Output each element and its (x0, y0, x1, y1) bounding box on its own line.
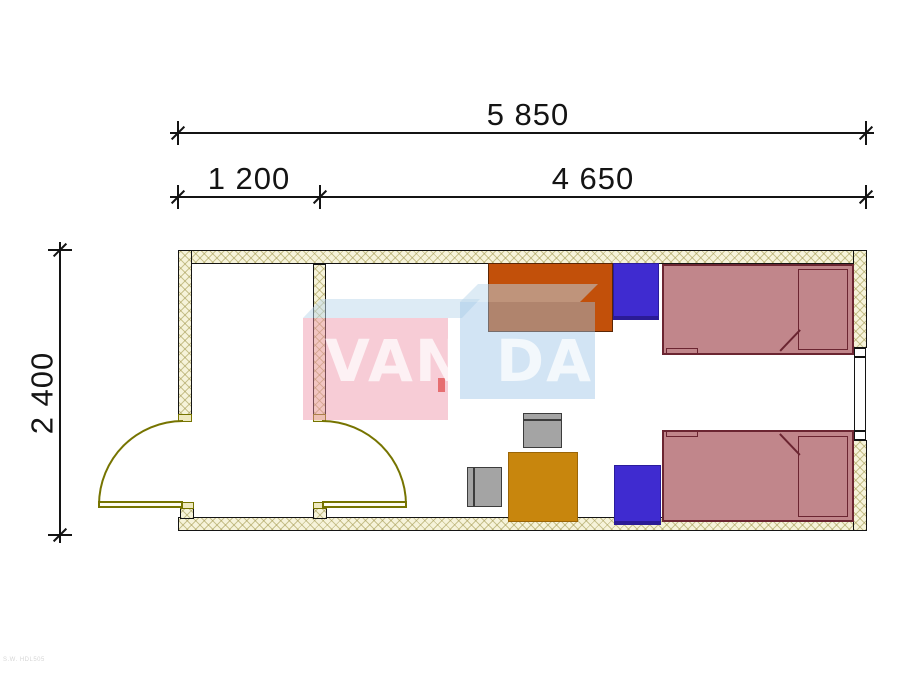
watermark-box-right-top-face (460, 284, 598, 302)
pillow-top (798, 269, 848, 350)
pillow-bottom (798, 436, 848, 517)
bed-bottom-head-strip (666, 431, 698, 437)
dim-label-entry-width: 1 200 (178, 161, 320, 197)
bed-top-foot-strip (666, 348, 698, 354)
floor-plan-canvas: 5 850 1 200 4 650 2 400 (0, 0, 924, 700)
window-right-wall (854, 348, 866, 440)
watermark-text-left: VAN (325, 332, 465, 390)
dim-label-total-width: 5 850 (178, 97, 878, 133)
interior-door-swing-arc (322, 420, 407, 505)
nightstand-bottom (614, 465, 661, 525)
dim-label-depth: 2 400 (25, 321, 61, 466)
dim-label-main-room-width: 4 650 (320, 161, 866, 197)
watermark-text-right: DA (496, 332, 593, 390)
entry-door-swing-arc (98, 420, 183, 505)
wall-left (178, 250, 192, 421)
chair-top (523, 413, 562, 448)
interior-door-leaf (322, 501, 407, 508)
wall-top (178, 250, 867, 264)
wall-right-upper (853, 250, 867, 348)
wall-right-lower (853, 440, 867, 531)
table (508, 452, 578, 522)
watermark-box-left-top-face (303, 299, 480, 318)
entry-door-leaf (98, 501, 183, 508)
chair-left (467, 467, 502, 507)
footer-mark: S.W. HDL505 (3, 657, 45, 663)
nightstand-top (613, 263, 659, 320)
